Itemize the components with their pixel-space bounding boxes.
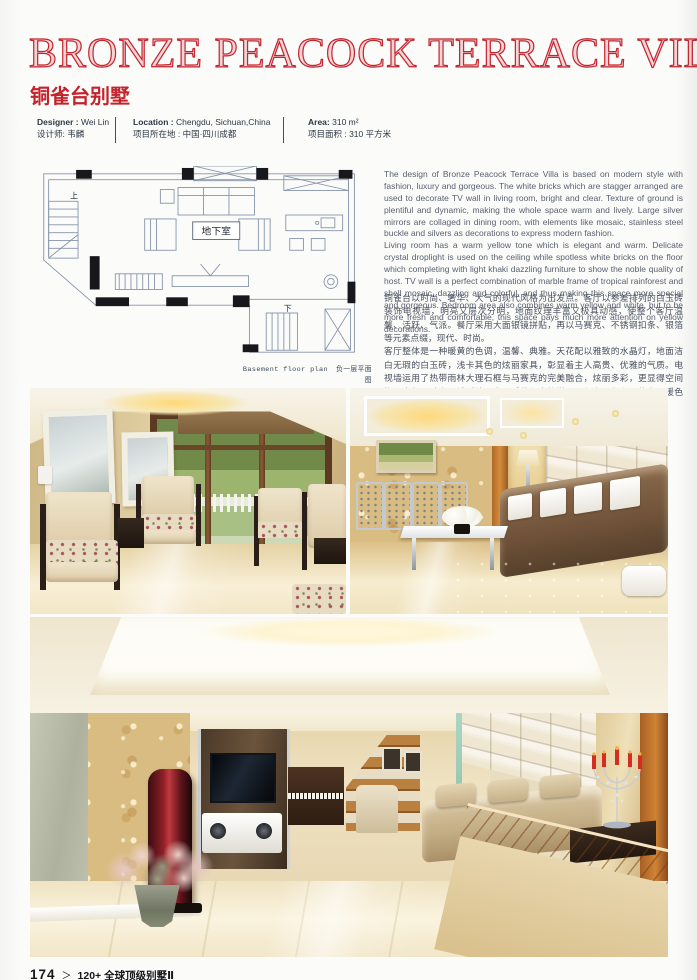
plan-fixture-circle — [324, 275, 338, 289]
downlight — [486, 428, 493, 435]
floral-cushion — [258, 522, 304, 538]
info-area-en: Area: 310 m² — [308, 116, 391, 128]
plan-armchair-right — [239, 219, 270, 250]
info-divider-2 — [283, 117, 284, 143]
plan-stairs-up — [49, 201, 78, 258]
plan-fixture-inner — [328, 278, 335, 285]
info-location: Location : Chengdu, Sichuan,China 项目所在地 … — [133, 116, 271, 140]
info-area: Area: 310 m² 项目面积 : 310 平方米 — [308, 116, 391, 140]
television — [210, 753, 276, 803]
flower-vase — [454, 524, 470, 534]
silver-chair — [356, 482, 384, 530]
plan-wall-chunk — [76, 170, 92, 179]
wall-painting-1 — [42, 409, 115, 505]
plan-wall-chunk — [96, 297, 129, 306]
armchair-seat — [142, 530, 196, 544]
plan-stairs-up-treads — [49, 209, 78, 258]
plan-sink — [321, 218, 335, 228]
designer-value: Wei Lin — [81, 117, 109, 127]
downlight — [612, 410, 619, 417]
piano-keys — [288, 793, 344, 799]
plan-piano — [115, 274, 162, 290]
white-pillow — [610, 476, 640, 511]
door-transom — [157, 445, 325, 450]
downlight — [572, 418, 579, 425]
page-subtitle-chinese: 铜雀台别墅 — [30, 80, 130, 109]
footer-arrow: ＞ — [62, 971, 72, 980]
table-lamp-shade — [516, 450, 540, 466]
photo-living-room — [350, 388, 668, 614]
floor-plan-drawing: 地下室 上 下 — [33, 166, 373, 362]
plan-stairs-down — [266, 313, 297, 350]
white-pillow — [508, 493, 532, 521]
plan-entry-cross — [194, 166, 257, 181]
photo-sunroom — [30, 388, 346, 614]
plan-wall-chunk — [243, 344, 259, 352]
floor-plan: 地下室 上 下 — [33, 166, 373, 362]
plan-sofa-cushions — [178, 188, 254, 215]
plan-down-label: 下 — [284, 304, 292, 313]
plan-sofa — [178, 188, 254, 215]
plan-faucet — [316, 221, 319, 224]
ceiling-tray-light — [364, 396, 490, 436]
silver-chair — [384, 482, 412, 530]
plan-armchair-left-lines — [151, 219, 157, 250]
armchair-seat — [46, 562, 118, 582]
plan-stool-1 — [290, 239, 304, 251]
floor-plan-caption: Basement floor plan负一层平面图 — [230, 363, 372, 385]
plan-wall-chunk — [182, 168, 194, 180]
cabinet-speaker — [256, 823, 272, 839]
coffee-table-leg — [490, 538, 494, 570]
plan-stairs-down-treads — [272, 313, 290, 350]
white-pillow — [574, 482, 602, 514]
location-label: Location : — [133, 117, 174, 127]
info-area-cn: 项目面积 : 310 平方米 — [308, 128, 391, 140]
floor-plan-caption-en: Basement floor plan — [243, 366, 328, 374]
footer-page-number: 174 — [30, 967, 56, 980]
photo-basement-room — [30, 617, 668, 957]
plan-kitchen-counter — [286, 215, 343, 231]
downlight — [520, 432, 527, 439]
info-designer-cn: 设计师: 韦麟 — [37, 128, 109, 140]
area-value: 310 m² — [332, 117, 358, 127]
ceiling-tray-light-2 — [500, 398, 564, 428]
plan-armchair-right-lines — [258, 219, 264, 250]
info-designer: Designer : Wei Lin 设计师: 韦麟 — [37, 116, 109, 140]
page-footer: 174＞120+ 全球顶级别墅Ⅱ — [30, 966, 174, 980]
landscape-painting — [376, 440, 436, 473]
cabinet-speaker — [210, 823, 226, 839]
footer-book-title: 120+ 全球顶级别墅Ⅱ — [78, 970, 174, 980]
cream-armchair — [356, 785, 398, 833]
thermostat — [38, 466, 52, 484]
plan-closet-wing-cross — [325, 309, 350, 350]
plan-wall-chunk — [256, 168, 268, 180]
info-location-en: Location : Chengdu, Sichuan,China — [133, 116, 271, 128]
ceiling-glow — [200, 617, 500, 647]
plan-armchair-left — [145, 219, 176, 250]
plan-up-label: 上 — [70, 191, 78, 200]
page-title: BRONZE PEACOCK TERRACE VILLA — [29, 30, 679, 78]
plan-wall-chunk — [166, 297, 188, 306]
sofa-headrest — [540, 773, 580, 798]
floral-cushion — [292, 584, 346, 614]
ceiling-light-glow — [100, 390, 250, 416]
leather-sofa-front — [446, 556, 668, 614]
silver-chair — [412, 482, 440, 530]
armchair-frame — [196, 484, 201, 546]
plan-piano-keys — [119, 274, 154, 290]
plan-wall-chunk — [348, 282, 356, 304]
floor-plan-caption-cn: 负一层平面图 — [336, 366, 372, 385]
armchair-frame — [302, 492, 307, 570]
plan-wall-chunk — [233, 295, 250, 307]
plan-stool-2 — [311, 239, 325, 251]
photo-frame — [382, 747, 402, 771]
location-value: Chengdu, Sichuan,China — [176, 117, 271, 127]
info-designer-en: Designer : Wei Lin — [37, 116, 109, 128]
magazine-page: BRONZE PEACOCK TERRACE VILLA 铜雀台别墅 Desig… — [0, 0, 697, 980]
sofa-headrest — [488, 778, 528, 803]
designer-label: Designer : — [37, 117, 79, 127]
plan-tv-console — [172, 276, 248, 287]
side-table — [314, 538, 346, 564]
side-table — [118, 518, 144, 548]
info-location-cn: 项目所在地 : 中国·四川成都 — [133, 128, 271, 140]
coffee-table-leg — [412, 538, 416, 570]
plan-screen-mark — [201, 264, 221, 276]
photo-frame — [404, 751, 422, 773]
project-info-row: Designer : Wei Lin 设计师: 韦麟 Location : Ch… — [0, 116, 697, 146]
candelabra — [582, 737, 652, 829]
plan-room-label: 地下室 — [202, 225, 232, 238]
info-divider-1 — [115, 117, 116, 143]
plan-side-table — [160, 190, 174, 204]
area-label: Area: — [308, 117, 330, 127]
plan-wall-chunk — [90, 256, 100, 289]
plan-wall-chunk — [339, 170, 353, 179]
white-pillow — [622, 566, 666, 596]
white-pillow — [540, 488, 566, 518]
